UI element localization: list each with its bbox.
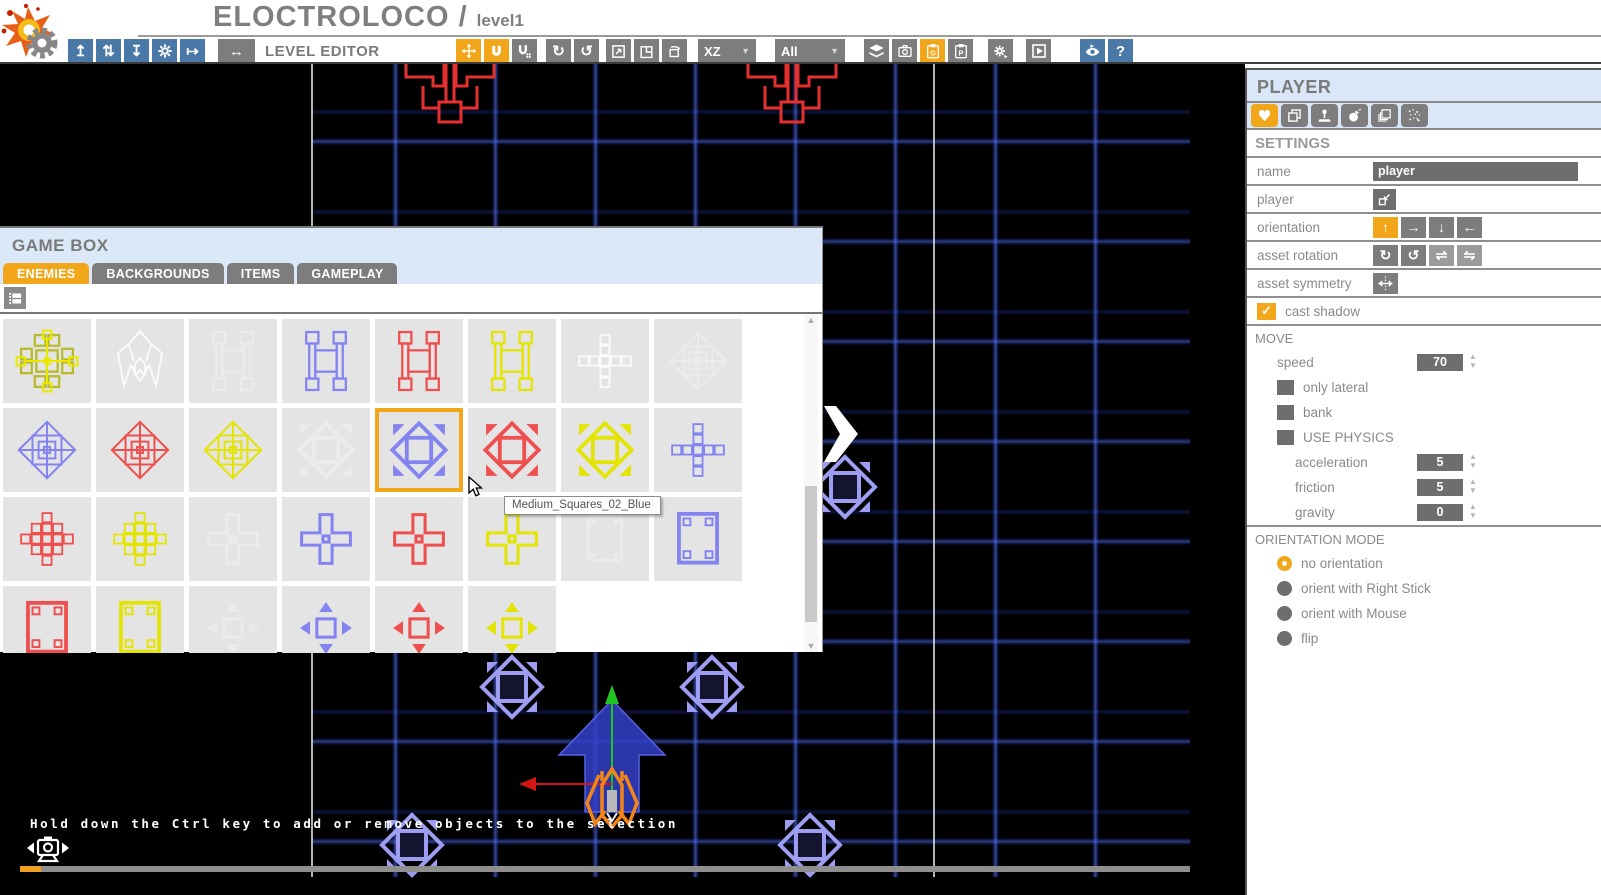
gamebox-tile-plus-grid-white[interactable] xyxy=(561,319,649,403)
move-tool-button[interactable] xyxy=(456,39,481,63)
only-lateral-checkbox[interactable] xyxy=(1277,380,1294,395)
radio-label: orient with Right Stick xyxy=(1301,581,1431,596)
tab-weapons[interactable] xyxy=(1341,104,1368,127)
gamebox-tile-square-arrows-blue[interactable] xyxy=(282,586,370,653)
tab-controls[interactable] xyxy=(1311,104,1338,127)
layer-filter-dropdown[interactable]: All▼ xyxy=(775,39,845,63)
gamebox-tile-square-arrows-yellow[interactable] xyxy=(468,586,556,653)
rotate-ccw-tool-button[interactable]: ↺ xyxy=(574,39,599,63)
svg-text:G: G xyxy=(930,48,936,57)
player-ship-selected[interactable] xyxy=(512,672,712,867)
edit-toolbar: ↻↺◳XZ▼All▼GP? xyxy=(456,39,1133,63)
help-button[interactable]: ? xyxy=(1108,39,1133,63)
arrow-exit-icon: ↦ xyxy=(186,42,199,60)
arrow-up-icon: ↑ xyxy=(1382,219,1389,235)
view-mode-button[interactable] xyxy=(4,287,26,309)
snapshot-button[interactable] xyxy=(892,39,917,63)
acceleration-input[interactable]: 5 xyxy=(1417,454,1463,471)
sidebar-title: PLAYER xyxy=(1247,70,1601,103)
flip-square-icon: ◳ xyxy=(639,42,653,60)
gamebox-tile-square-frame-red[interactable] xyxy=(3,586,91,653)
radio-orient-with-right-stick[interactable] xyxy=(1277,581,1292,596)
gravity-label: gravity xyxy=(1295,505,1335,520)
chevron-down-icon: ▼ xyxy=(830,46,839,56)
orientation-right-button[interactable]: → xyxy=(1401,217,1426,238)
orientation-row: orientation ↑→↓← xyxy=(1247,214,1601,242)
gravity-stepper[interactable]: ▲▼ xyxy=(1469,502,1477,520)
name-label: name xyxy=(1257,164,1373,179)
orientation-mode-row: orient with Right Stick xyxy=(1247,576,1601,601)
orientation-mode-header: ORIENTATION MODE xyxy=(1247,525,1601,551)
checkbox-label: USE PHYSICS xyxy=(1303,430,1394,445)
gamebox-tile-square-frame-yellow[interactable] xyxy=(96,586,184,653)
sync-level-button[interactable]: ⇅ xyxy=(96,39,121,63)
speed-row: speed 70 ▲▼ xyxy=(1247,350,1601,375)
acceleration-stepper[interactable]: ▲▼ xyxy=(1469,452,1477,470)
bomb-icon xyxy=(1347,108,1362,123)
checkbox-label: only lateral xyxy=(1303,380,1368,395)
gamebox-tile-diamond-wire-yellow[interactable] xyxy=(189,408,277,492)
asset-symmetry-label: asset symmetry xyxy=(1257,276,1373,291)
gamebox-tile-plus-small-white[interactable] xyxy=(189,497,277,581)
radio-flip[interactable] xyxy=(1277,631,1292,646)
arrows-left-right-icon: ↔ xyxy=(229,43,244,60)
friction-input[interactable]: 5 xyxy=(1417,479,1463,496)
rotate-cw-icon: ↻ xyxy=(1380,247,1392,264)
gamebox-title: GAME BOX xyxy=(0,228,822,261)
player-assign-button[interactable] xyxy=(1373,189,1396,210)
friction-stepper[interactable]: ▲▼ xyxy=(1469,477,1477,495)
layer-filter-dropdown-value: All xyxy=(781,44,798,59)
gamebox-tab-gameplay[interactable]: GAMEPLAY xyxy=(297,263,397,284)
snap-move-tool-button[interactable] xyxy=(484,39,509,63)
camera-nav-button[interactable] xyxy=(26,834,70,869)
level-name: level1 xyxy=(477,11,524,31)
gamebox-tile-square-arrows-red[interactable] xyxy=(375,586,463,653)
arrow-left-icon: ← xyxy=(1463,219,1477,235)
joystick-icon xyxy=(1317,108,1332,123)
gamebox-tile-diamond-wire-white[interactable] xyxy=(654,319,742,403)
status-hint: Hold down the Ctrl key to add or remove … xyxy=(30,816,678,831)
gravity-row: gravity0▲▼ xyxy=(1247,500,1601,525)
rotate-square-icon xyxy=(667,44,682,59)
gamebox-tile-h-cage-blue[interactable] xyxy=(282,319,370,403)
toolbar-label: LEVEL EDITOR xyxy=(265,43,380,60)
copy-icon xyxy=(1287,108,1302,123)
arrow-right-icon: → xyxy=(1407,219,1421,235)
gamebox-tab-items[interactable]: ITEMS xyxy=(227,263,295,284)
acceleration-row: acceleration5▲▼ xyxy=(1247,450,1601,475)
horizontal-scrollbar[interactable] xyxy=(20,866,1190,872)
magnet-grid-icon xyxy=(517,44,532,59)
magnet-icon xyxy=(489,44,504,59)
save-level-button[interactable]: ↧ xyxy=(124,39,149,63)
orientation-mode-row: orient with Mouse xyxy=(1247,601,1601,626)
friction-row: friction5▲▼ xyxy=(1247,475,1601,500)
acceleration-label: acceleration xyxy=(1295,455,1368,470)
radio-label: no orientation xyxy=(1301,556,1383,571)
title-divider xyxy=(138,35,1601,37)
asset-rotate-cw-button[interactable]: ↻ xyxy=(1373,245,1398,266)
radio-label: orient with Mouse xyxy=(1301,606,1407,621)
axis-dropdown-value: XZ xyxy=(704,44,721,59)
asset-rotation-row: asset rotation ↻↺⇌⇋ xyxy=(1247,242,1601,270)
question-icon: ? xyxy=(1116,43,1125,60)
player-properties-panel: PLAYER SETTINGS name player player orien… xyxy=(1245,68,1601,895)
tab-duplicate[interactable] xyxy=(1281,104,1308,127)
gamebox-tile-h-cage-yellow[interactable] xyxy=(468,319,556,403)
rotate-cw-icon: ↻ xyxy=(552,42,565,60)
app-title: ELOCTROLOCO / xyxy=(213,1,468,34)
panel-expand-chevron-icon[interactable] xyxy=(824,406,858,467)
friction-label: friction xyxy=(1295,480,1335,495)
speed-stepper[interactable]: ▲▼ xyxy=(1469,352,1477,370)
play-level-button[interactable] xyxy=(1026,39,1051,63)
gamebox-tile-diamond-wire-red[interactable] xyxy=(96,408,184,492)
tab-particles[interactable] xyxy=(1401,104,1428,127)
gamebox-tile-plus-grid-blue[interactable] xyxy=(654,408,742,492)
radio-orient-with-mouse[interactable] xyxy=(1277,606,1292,621)
arrow-up-box-icon: ↥ xyxy=(74,42,87,60)
gamebox-tile-square-frame-blue[interactable] xyxy=(654,497,742,581)
enemy-red-claw[interactable] xyxy=(744,64,840,135)
gamebox-tile-h-cage-red[interactable] xyxy=(375,319,463,403)
mouse-cursor xyxy=(468,476,484,503)
speed-input[interactable]: 70 xyxy=(1417,354,1463,371)
rotate-ccw-icon: ↺ xyxy=(580,42,593,60)
level-bound-right xyxy=(933,64,935,877)
title-toolbar: ELOCTROLOCO / level1 ↥⇅↧↦ ↔ LEVEL EDITOR… xyxy=(0,0,1601,64)
file-toolbar: ↥⇅↧↦ xyxy=(68,39,205,63)
exit-editor-button[interactable]: ↦ xyxy=(180,39,205,63)
move-arrows-icon xyxy=(461,43,477,59)
import-into-icon xyxy=(1377,192,1392,207)
orientation-down-button[interactable]: ↓ xyxy=(1429,217,1454,238)
play-icon xyxy=(1031,43,1047,59)
clipboard-g-icon: G xyxy=(925,43,941,59)
clipboard-p-icon: P xyxy=(953,43,969,59)
pages-icon xyxy=(1377,108,1392,123)
asset-flip-h-button[interactable]: ⇌ xyxy=(1429,245,1454,266)
gamebox-tab-enemies[interactable]: ENEMIES xyxy=(3,263,89,284)
orientation-mode-row: no orientation xyxy=(1247,551,1601,576)
settings-header: SETTINGS xyxy=(1247,130,1601,158)
svg-text:P: P xyxy=(958,48,963,57)
preview-button[interactable] xyxy=(1080,39,1105,63)
radio-no-orientation[interactable] xyxy=(1277,556,1292,571)
film-icon xyxy=(8,291,23,306)
cast-shadow-checkbox[interactable]: ✓ xyxy=(1257,303,1276,320)
app-logo-icon xyxy=(0,1,62,66)
name-row: name player xyxy=(1247,158,1601,186)
use-physics-checkbox[interactable] xyxy=(1277,430,1294,445)
paste-properties-button[interactable]: P xyxy=(948,39,973,63)
gamebox-tile-square-arrows-white[interactable] xyxy=(189,586,277,653)
name-input[interactable]: player xyxy=(1373,162,1578,181)
horizontal-scrollbar-thumb[interactable] xyxy=(20,866,41,872)
gamebox-scrollbar[interactable]: ▲ ▼ xyxy=(804,314,818,652)
asset-rotation-label: asset rotation xyxy=(1257,248,1373,263)
rotate-ccw-icon: ↺ xyxy=(1408,247,1420,264)
move-option-row: only lateral xyxy=(1247,375,1601,400)
level-editor-window: Hold down the Ctrl key to add or remove … xyxy=(0,0,1601,895)
flip-horizontal-icon: ⇌ xyxy=(1436,247,1448,264)
move-option-row: bank xyxy=(1247,400,1601,425)
build-level-button[interactable] xyxy=(988,39,1013,63)
gravity-input[interactable]: 0 xyxy=(1417,504,1463,521)
gamebox-tile-ship-white[interactable] xyxy=(96,319,184,403)
settings-button[interactable] xyxy=(152,39,177,63)
symmetry-icon xyxy=(1377,275,1394,292)
tab-layers[interactable] xyxy=(1371,104,1398,127)
orientation-left-button[interactable]: ← xyxy=(1457,217,1482,238)
gamebox-tile-cross-cage-yellow[interactable] xyxy=(3,319,91,403)
asset-tabs xyxy=(1247,103,1601,130)
gamebox-tile-diamond-wire-blue[interactable] xyxy=(3,408,91,492)
orientation-mode-row: flip xyxy=(1247,626,1601,651)
gamebox-tile-diamond-solid-white[interactable] xyxy=(282,408,370,492)
move-option-row: USE PHYSICS xyxy=(1247,425,1601,450)
camera-icon xyxy=(897,43,913,59)
speed-label: speed xyxy=(1277,355,1314,370)
enemy-blue-diamond[interactable] xyxy=(777,812,843,883)
arrow-down-icon: ↓ xyxy=(1438,219,1445,235)
paste-gamebox-button[interactable]: G xyxy=(920,39,945,63)
enemy-red-claw[interactable] xyxy=(402,64,498,135)
player-row: player xyxy=(1247,186,1601,214)
gamebox-tile-diamond-solid-yellow[interactable] xyxy=(561,408,649,492)
gamebox-tile-cross-grid-yellow[interactable] xyxy=(96,497,184,581)
particles-icon xyxy=(1407,108,1422,123)
bank-checkbox[interactable] xyxy=(1277,405,1294,420)
rotate-cw-tool-button[interactable]: ↻ xyxy=(546,39,571,63)
arrow-down-box-icon: ↧ xyxy=(130,42,143,60)
gear-arrow-icon xyxy=(993,43,1009,59)
snap-grid-tool-button[interactable] xyxy=(512,39,537,63)
asset-symmetry-row: asset symmetry xyxy=(1247,270,1601,298)
tab-player-heart[interactable] xyxy=(1251,104,1278,127)
gamebox-tile-plus-small-red[interactable] xyxy=(375,497,463,581)
scroll-up-icon[interactable]: ▲ xyxy=(804,314,818,326)
gamebox-tile-Medium_Squares_02_Blue[interactable] xyxy=(375,408,463,492)
player-label: player xyxy=(1257,192,1373,207)
level-editor-toggle-button[interactable]: ↔ xyxy=(218,39,255,63)
orientation-label: orientation xyxy=(1257,220,1373,235)
asset-symmetry-button[interactable] xyxy=(1373,273,1398,294)
gamebox-tab-backgrounds[interactable]: BACKGROUNDS xyxy=(92,263,223,284)
asset-rotate-ccw-button[interactable]: ↺ xyxy=(1401,245,1426,266)
axis-dropdown[interactable]: XZ▼ xyxy=(698,39,756,63)
gear-icon xyxy=(157,43,173,59)
layers-icon xyxy=(868,43,885,60)
eye-icon xyxy=(1084,43,1101,60)
scroll-down-icon[interactable]: ▼ xyxy=(804,640,818,652)
gamebox-panel: GAME BOX ENEMIESBACKGROUNDSITEMSGAMEPLAY… xyxy=(0,226,823,652)
gamebox-scrollbar-thumb[interactable] xyxy=(805,486,817,622)
chevron-down-icon: ▼ xyxy=(741,46,750,56)
asset-flip-v-button[interactable]: ⇋ xyxy=(1457,245,1482,266)
cast-shadow-row: ✓ cast shadow xyxy=(1247,298,1601,326)
heart-icon xyxy=(1257,108,1272,123)
flip-vertical-icon: ⇋ xyxy=(1464,247,1476,264)
radio-label: flip xyxy=(1301,631,1318,646)
export-level-button[interactable]: ↥ xyxy=(68,39,93,63)
scale-box-icon xyxy=(611,44,626,59)
gamebox-tile-grid xyxy=(0,314,771,653)
gamebox-tile-cross-grid-red[interactable] xyxy=(3,497,91,581)
arrows-up-down-icon: ⇅ xyxy=(102,42,115,60)
checkbox-label: bank xyxy=(1303,405,1332,420)
flip-asset-tool-button[interactable]: ◳ xyxy=(634,39,659,63)
gamebox-tile-h-cage-white[interactable] xyxy=(189,319,277,403)
gamebox-tabs: ENEMIESBACKGROUNDSITEMSGAMEPLAY xyxy=(0,261,822,284)
layers-button[interactable] xyxy=(864,39,889,63)
cast-shadow-label: cast shadow xyxy=(1285,304,1360,319)
gamebox-tile-plus-small-blue[interactable] xyxy=(282,497,370,581)
scale-tool-button[interactable] xyxy=(606,39,631,63)
orientation-up-button[interactable]: ↑ xyxy=(1373,217,1398,238)
move-header: MOVE xyxy=(1247,326,1601,350)
tile-tooltip: Medium_Squares_02_Blue xyxy=(504,496,661,515)
rotate-asset-tool-button[interactable] xyxy=(662,39,687,63)
